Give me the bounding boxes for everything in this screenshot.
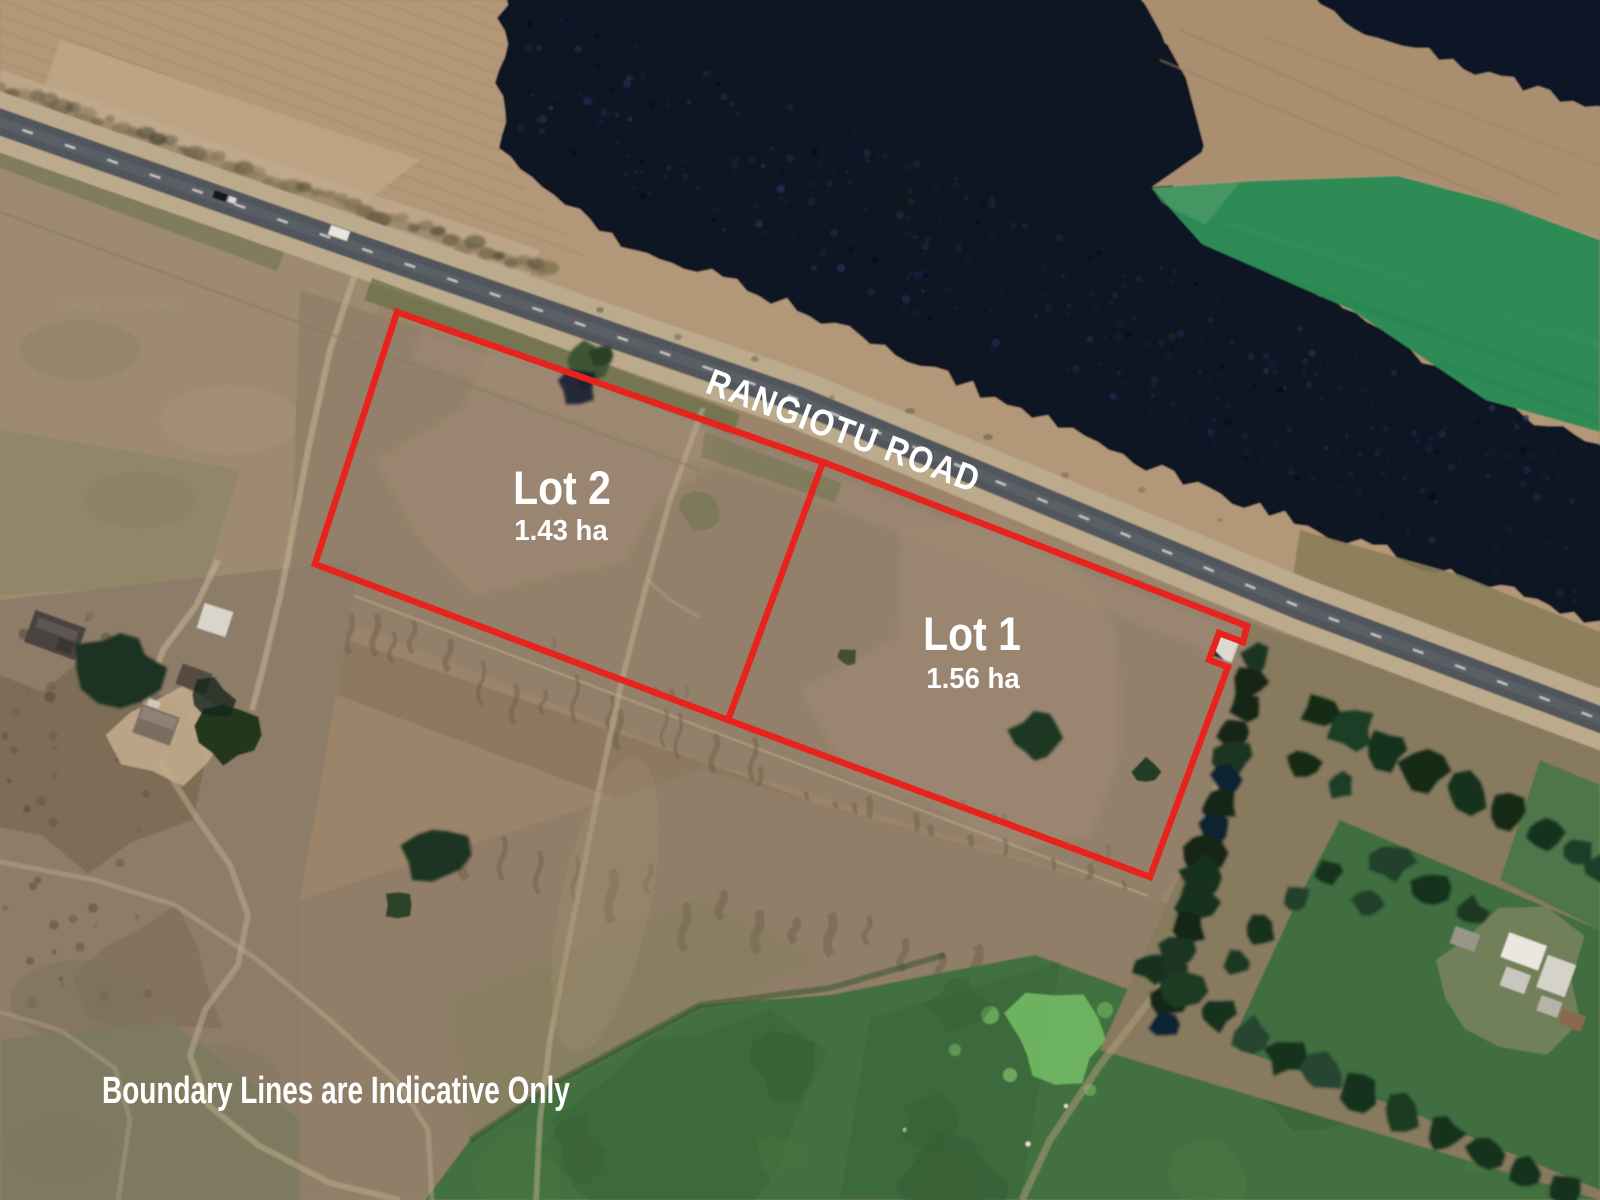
svg-text:1.56 ha: 1.56 ha <box>926 661 1020 694</box>
svg-text:Boundary Lines are Indicative: Boundary Lines are Indicative Only <box>102 1070 570 1112</box>
svg-text:1.43 ha: 1.43 ha <box>514 513 608 546</box>
svg-text:Lot 2: Lot 2 <box>513 462 611 514</box>
svg-text:Lot 1: Lot 1 <box>923 608 1021 660</box>
svg-text:Imagery ©2024 Google: Imagery ©2024 Google <box>58 297 183 311</box>
